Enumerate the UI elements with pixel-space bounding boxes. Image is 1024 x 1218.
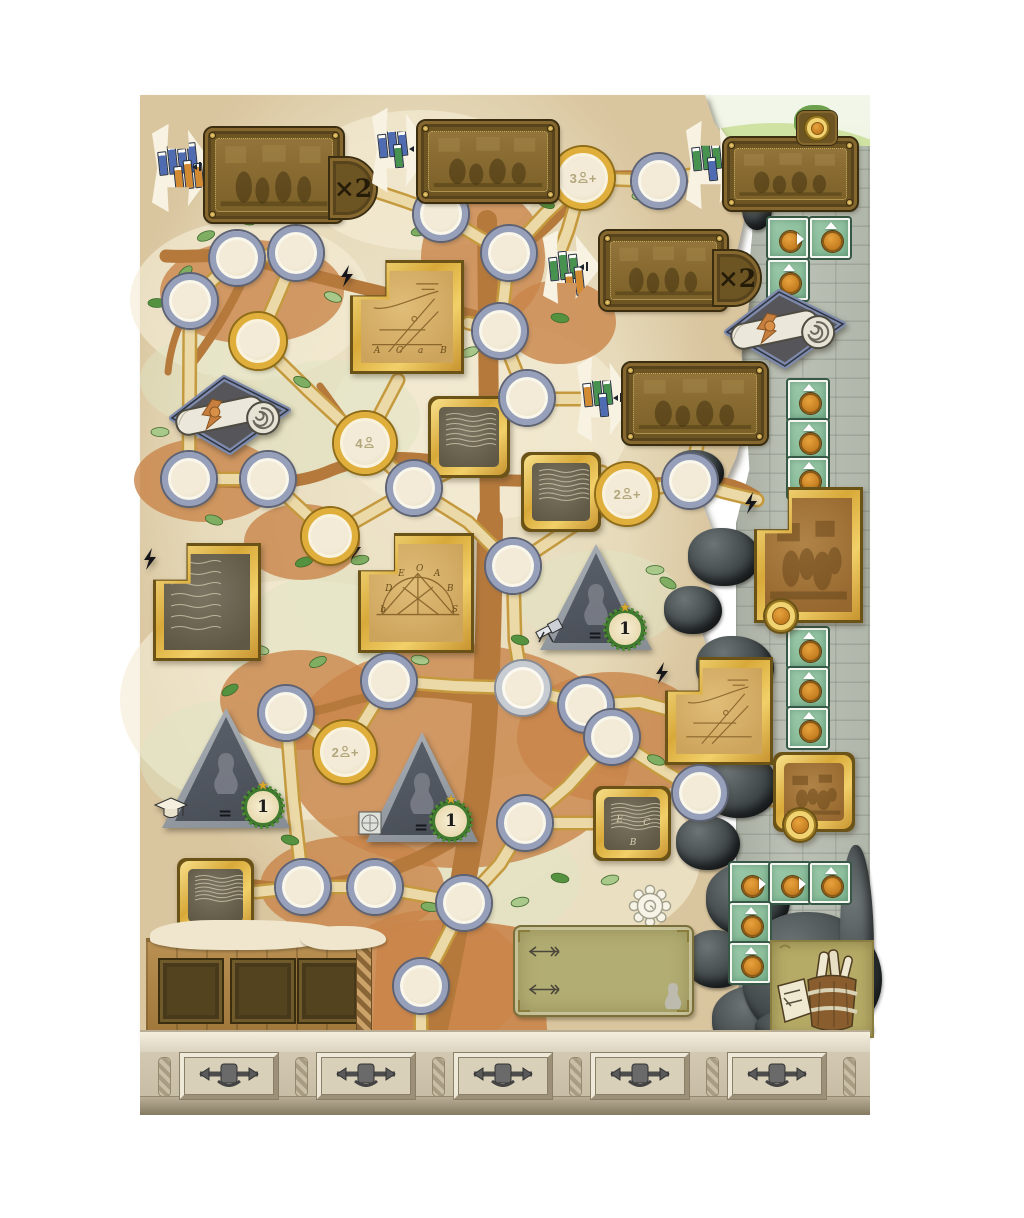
count-text: 3 xyxy=(570,171,577,186)
action-space-circle[interactable] xyxy=(387,461,441,515)
rock-cluster xyxy=(688,528,760,586)
scroll-tile[interactable] xyxy=(163,368,295,460)
bust-silhouette-icon xyxy=(206,749,246,806)
arrow-up-icon xyxy=(745,907,757,914)
manuscript-tile[interactable] xyxy=(156,546,258,658)
star-icon: ★ xyxy=(258,779,268,792)
rope-column xyxy=(356,942,372,1038)
mortarboard-icon xyxy=(154,797,188,826)
sketch-tile[interactable]: bDEOABS xyxy=(361,536,471,650)
crate-slot[interactable] xyxy=(299,960,361,1022)
arrow-right-icon xyxy=(759,878,766,890)
laurel-badge: 1★ xyxy=(606,610,644,648)
action-space-circle[interactable] xyxy=(276,860,330,914)
action-space-circle[interactable] xyxy=(269,226,323,280)
plaque-screw xyxy=(729,200,734,205)
frieze-panel xyxy=(591,1053,689,1099)
arrow-up-icon xyxy=(783,264,795,271)
action-space-circle[interactable] xyxy=(362,654,416,708)
track-space[interactable] xyxy=(770,863,810,903)
objective-note xyxy=(513,925,694,1017)
action-space-circle[interactable] xyxy=(473,304,527,358)
tile-face xyxy=(188,869,243,922)
action-space-circle[interactable] xyxy=(486,539,540,593)
action-space-circle[interactable] xyxy=(585,710,639,764)
rope-twist-separator xyxy=(158,1057,171,1097)
coin-medallion-icon xyxy=(784,809,816,841)
plaque-screw xyxy=(333,133,338,138)
track-space[interactable] xyxy=(788,668,828,708)
manuscript-tile[interactable] xyxy=(524,455,598,529)
sketch-letter: E xyxy=(616,815,623,825)
frieze-panel xyxy=(180,1053,278,1099)
tile-face xyxy=(765,498,852,612)
star-icon: ★ xyxy=(446,793,456,806)
frieze-panel xyxy=(454,1053,552,1099)
arrow-up-icon xyxy=(745,947,757,954)
gear-sketch-icon xyxy=(626,882,674,930)
coin-icon xyxy=(742,956,763,977)
track-space[interactable] xyxy=(788,708,828,748)
action-space-circle[interactable]: 3+ xyxy=(552,147,614,209)
sketch-letter: B xyxy=(440,346,447,356)
action-space-circle[interactable] xyxy=(500,371,554,425)
sketch-letter: B xyxy=(630,838,637,848)
lightning-bolt-icon xyxy=(339,265,355,292)
track-space[interactable] xyxy=(810,218,850,258)
arrow-right-icon xyxy=(799,878,806,890)
equals-sign: = xyxy=(588,626,602,646)
plaque-screw xyxy=(847,200,852,205)
sketch-tile[interactable] xyxy=(668,660,770,762)
lightning-bolt-icon xyxy=(142,548,158,575)
metal-scrollwork-icon xyxy=(331,1061,401,1092)
coin-medallion-icon xyxy=(765,600,797,632)
action-space-circle[interactable] xyxy=(663,454,717,508)
meeple-icon xyxy=(340,745,350,760)
plaque-screw xyxy=(847,143,852,148)
track-space[interactable] xyxy=(810,863,850,903)
banner-plaque xyxy=(623,363,767,444)
star-icon: ★ xyxy=(620,601,630,614)
coin-icon xyxy=(800,721,821,742)
equals-sign: = xyxy=(414,818,428,838)
plaque-screw xyxy=(548,192,553,197)
sketch-letter: a xyxy=(418,346,423,356)
arrow-up-icon xyxy=(803,632,815,639)
action-space-circle[interactable] xyxy=(230,313,286,369)
plus-text: + xyxy=(589,171,597,186)
meeple-icon xyxy=(622,487,632,502)
sketch-letter: S xyxy=(452,605,458,615)
sketch-letter: E xyxy=(398,569,405,579)
track-space[interactable] xyxy=(768,218,808,258)
barrel-of-scrolls-icon xyxy=(770,940,874,1038)
plaque-screw xyxy=(717,236,722,241)
space-player-count-label: 3+ xyxy=(570,171,597,186)
lightning-bolt-icon xyxy=(654,662,670,689)
plaque-screw xyxy=(423,192,428,197)
rope-twist-separator xyxy=(569,1057,582,1097)
action-space-circle[interactable] xyxy=(482,226,536,280)
sketch-tile[interactable]: ACaB xyxy=(353,263,461,371)
crate-slot[interactable] xyxy=(160,960,222,1022)
action-space-circle[interactable] xyxy=(394,959,448,1013)
arrow-up-icon xyxy=(825,222,837,229)
note-corner-flourish xyxy=(518,930,530,942)
seal-icon xyxy=(358,811,382,840)
action-space-circle[interactable] xyxy=(162,452,216,506)
note-corner-flourish xyxy=(518,1000,530,1012)
feather-arrow-icon xyxy=(527,983,561,996)
engraving-tile[interactable] xyxy=(757,490,860,620)
books-arrow-icon xyxy=(613,393,623,403)
plaque-screw xyxy=(605,300,610,305)
banner-plaque xyxy=(205,128,343,222)
metal-scrollwork-icon xyxy=(194,1061,264,1092)
arrow-up-icon xyxy=(803,672,815,679)
count-text: 4 xyxy=(355,436,362,451)
rope-twist-separator xyxy=(295,1057,308,1097)
track-space[interactable] xyxy=(788,628,828,668)
feather-arrow-icon xyxy=(527,945,561,958)
action-space-circle[interactable] xyxy=(498,796,552,850)
space-player-count-label: 2+ xyxy=(614,487,641,502)
sketch-letter: B xyxy=(447,584,454,594)
rope-twist-separator xyxy=(706,1057,719,1097)
tile-face xyxy=(164,554,250,650)
telescope-icon xyxy=(532,617,568,648)
sketch-letter: C xyxy=(396,346,403,356)
tile-face: bDEOABS xyxy=(369,544,463,642)
coin-icon xyxy=(800,433,821,454)
sketch-letter: O xyxy=(416,564,423,574)
action-space-circle[interactable] xyxy=(163,274,217,328)
rope-twist-separator xyxy=(843,1057,856,1097)
rope-twist-separator xyxy=(432,1057,445,1097)
arrow-up-icon xyxy=(803,384,815,391)
tile-face: ACaB xyxy=(361,271,453,363)
action-space-circle[interactable] xyxy=(632,154,686,208)
frieze-panel xyxy=(317,1053,415,1099)
master-space-triangle[interactable]: =1★ xyxy=(366,732,478,842)
tile-face xyxy=(532,463,590,521)
plaque-screw xyxy=(757,368,762,373)
manuscript-tile[interactable]: ECB xyxy=(596,789,668,858)
plaque-screw xyxy=(729,143,734,148)
tile-face xyxy=(676,668,762,754)
banner-plaque xyxy=(418,121,558,202)
metal-scrollwork-icon xyxy=(742,1061,812,1092)
crate-slot[interactable] xyxy=(232,960,294,1022)
meeple-icon xyxy=(364,436,374,451)
arrow-right-icon xyxy=(797,233,804,245)
coin-icon xyxy=(811,122,824,135)
plaque-screw xyxy=(757,434,762,439)
equals-sign: = xyxy=(218,804,232,824)
plaque-engraving xyxy=(428,131,548,192)
arrow-up-icon xyxy=(803,424,815,431)
coin-icon xyxy=(800,641,821,662)
books-arrow-icon xyxy=(192,162,202,172)
plaque-engraving xyxy=(215,138,333,212)
plaque-screw xyxy=(628,434,633,439)
note-corner-flourish xyxy=(677,930,689,942)
track-space[interactable] xyxy=(788,420,828,460)
plaque-screw xyxy=(548,126,553,131)
laurel-badge: 1★ xyxy=(244,788,282,826)
action-space-circle[interactable] xyxy=(259,686,313,740)
coin-icon xyxy=(742,916,763,937)
action-space-circle[interactable] xyxy=(302,508,358,564)
space-player-count-label: 2+ xyxy=(332,745,359,760)
action-space-circle[interactable] xyxy=(437,876,491,930)
track-space[interactable] xyxy=(730,943,770,983)
lightning-bolt-icon xyxy=(743,492,759,519)
plaque-screw xyxy=(628,368,633,373)
arrow-up-icon xyxy=(803,462,815,469)
sketch-letter: A xyxy=(434,569,441,579)
track-space[interactable] xyxy=(788,380,828,420)
master-space-triangle[interactable]: =1★ xyxy=(540,544,652,650)
coin-icon xyxy=(805,116,829,140)
sketch-letter: C xyxy=(643,818,650,828)
meeple-icon xyxy=(578,171,588,186)
plus-text: + xyxy=(633,487,641,502)
sketch-letter: D xyxy=(385,584,392,594)
frieze-panel xyxy=(728,1053,826,1099)
metal-scrollwork-icon xyxy=(605,1061,675,1092)
banner-plaque xyxy=(600,231,727,310)
banner-top-medallion xyxy=(797,111,837,145)
action-space-circle[interactable] xyxy=(210,231,264,285)
action-space-circle[interactable]: 2+ xyxy=(596,463,658,525)
track-space[interactable] xyxy=(730,903,770,943)
sketch-letter: A xyxy=(374,346,381,356)
tile-face xyxy=(439,407,499,467)
coin-icon xyxy=(791,816,809,834)
rock-cluster xyxy=(676,816,740,870)
plaque-engraving xyxy=(734,148,847,200)
note-corner-flourish xyxy=(677,1000,689,1012)
coin-icon xyxy=(800,681,821,702)
action-space-circle[interactable] xyxy=(673,766,727,820)
coin-icon xyxy=(822,231,843,252)
plaque-engraving xyxy=(633,373,757,434)
plaque-engraving xyxy=(610,241,717,300)
plaque-screw xyxy=(423,126,428,131)
action-space-circle[interactable]: 2+ xyxy=(314,721,376,783)
manuscript-tile[interactable] xyxy=(431,399,507,475)
action-space-circle[interactable] xyxy=(348,860,402,914)
arrow-up-icon xyxy=(803,712,815,719)
count-text: 2 xyxy=(614,487,621,502)
coin-icon xyxy=(800,393,821,414)
plaque-screw xyxy=(605,236,610,241)
laurel-badge: 1★ xyxy=(432,802,470,840)
game-board: ACaBbDEOABSECB=1★=1★=1★3+42+2+×2×2 xyxy=(0,0,1024,1218)
plaque-screw xyxy=(210,133,215,138)
torn-parchment-edge xyxy=(300,926,386,950)
plaque-screw xyxy=(210,212,215,217)
space-player-count-label: 4 xyxy=(355,436,374,451)
plus-text: + xyxy=(351,745,359,760)
books-arrow-icon xyxy=(579,262,589,272)
count-text: 2 xyxy=(332,745,339,760)
action-space-circle[interactable]: 4 xyxy=(334,412,396,474)
arrow-up-icon xyxy=(825,867,837,874)
action-space-circle[interactable] xyxy=(241,452,295,506)
action-space-circle[interactable] xyxy=(496,661,550,715)
rock-cluster xyxy=(664,586,722,634)
sketch-letter: b xyxy=(380,605,386,615)
coin-icon xyxy=(772,607,790,625)
metal-scrollwork-icon xyxy=(468,1061,538,1092)
track-space[interactable] xyxy=(730,863,770,903)
banner-plaque xyxy=(724,138,857,210)
tile-face: ECB xyxy=(604,797,660,850)
engraving-tile[interactable] xyxy=(776,755,852,829)
coin-icon xyxy=(822,876,843,897)
